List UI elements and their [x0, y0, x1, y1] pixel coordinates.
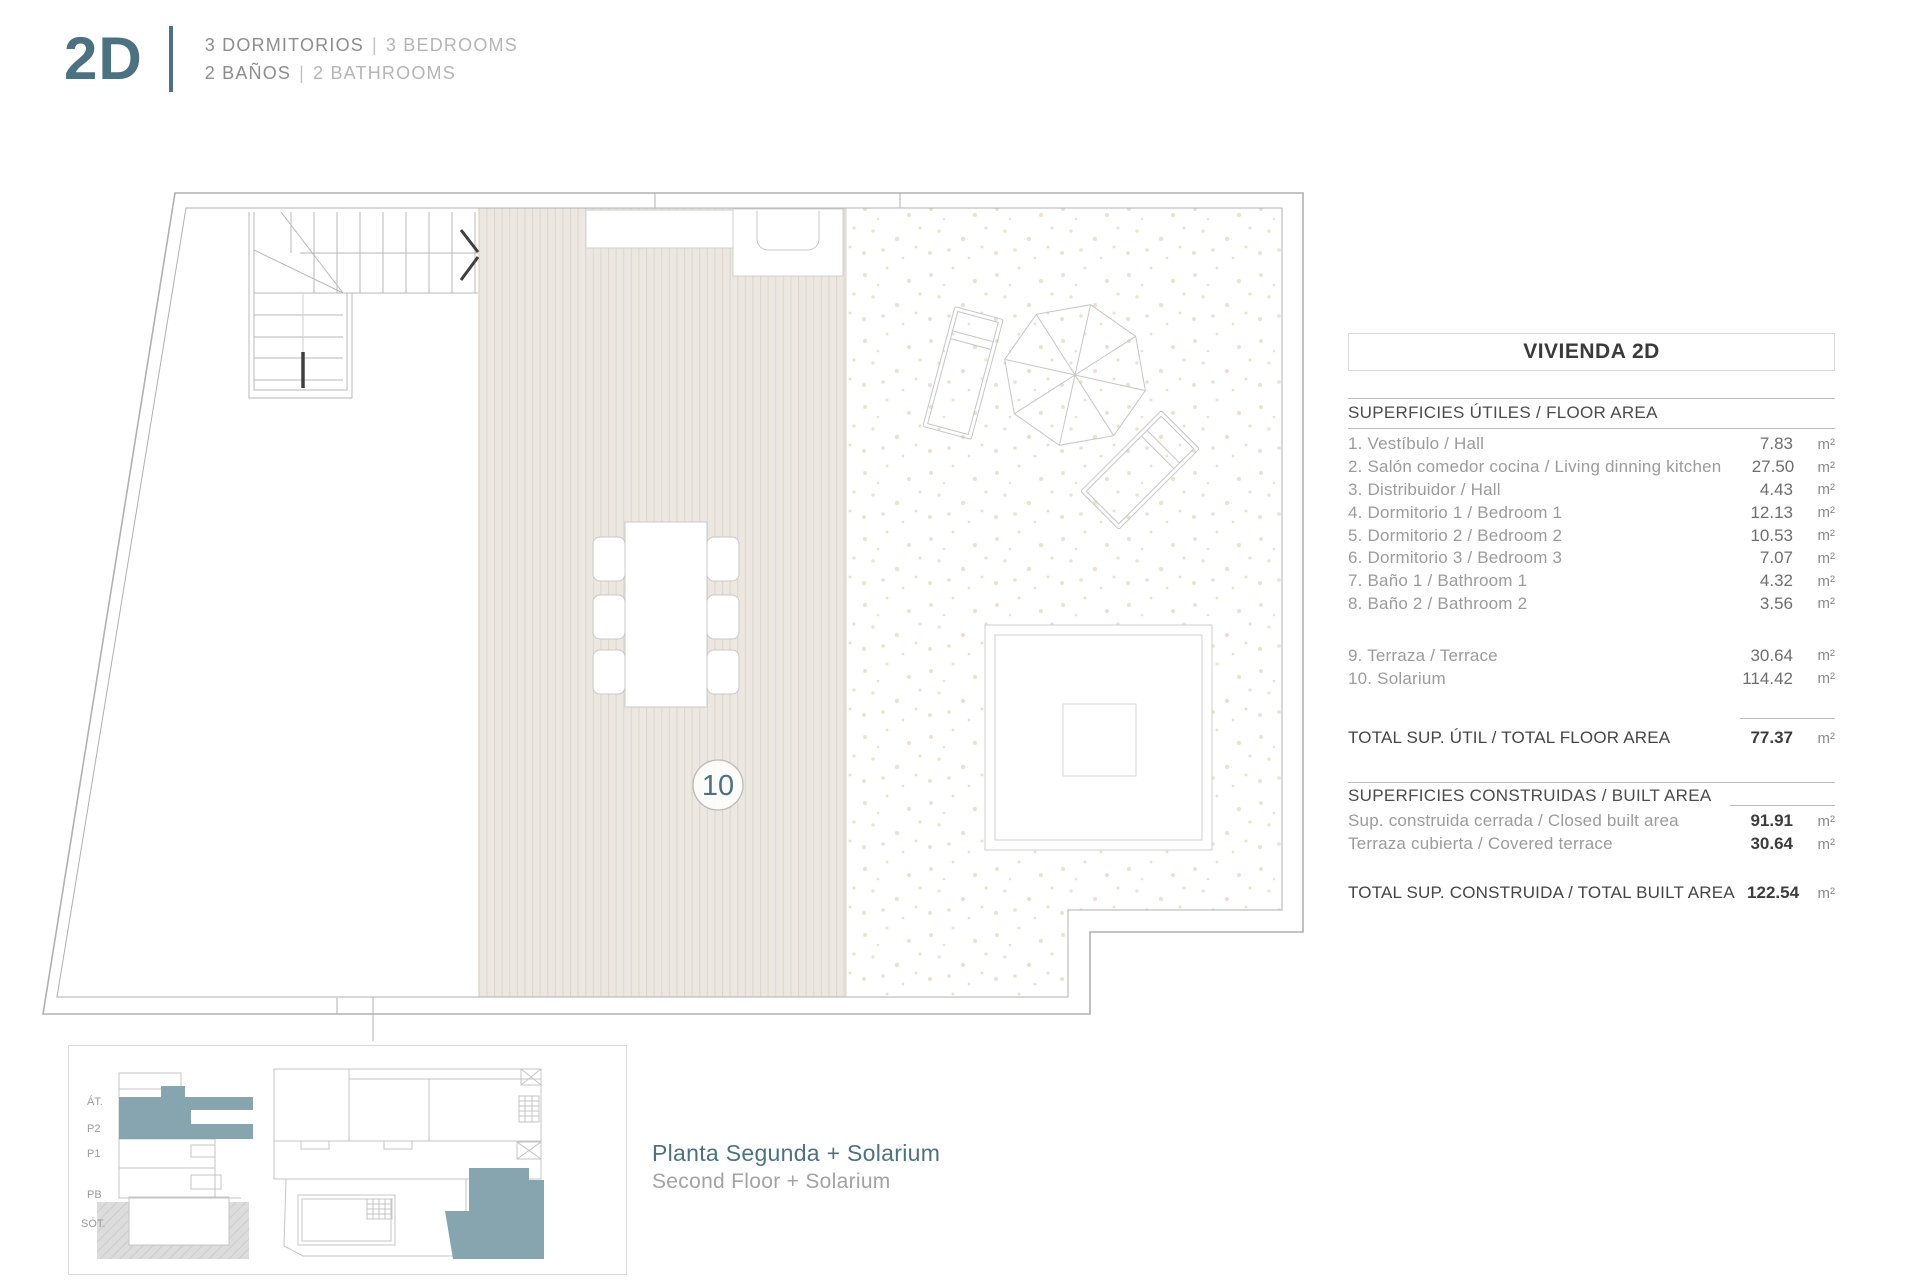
sink-basin: [757, 211, 819, 250]
area-row: 6. Dormitorio 3 / Bedroom 37.07m²: [1348, 547, 1835, 570]
rule: [1730, 805, 1835, 806]
floor-area-header: SUPERFICIES ÚTILES / FLOOR AREA: [1348, 403, 1835, 423]
area-row: 2. Salón comedor cocina / Living dinning…: [1348, 456, 1835, 479]
chair: [593, 537, 625, 581]
floor-label-pb: PB: [87, 1189, 102, 1201]
area-row: 10. Solarium114.42m²: [1348, 667, 1835, 690]
total-floor-row: TOTAL SUP. ÚTIL / TOTAL FLOOR AREA77.37m…: [1348, 727, 1835, 750]
key-plan-drawing: ÁT. P2 P1 PB SÓT.: [69, 1046, 626, 1274]
built-row: Sup. construida cerrada / Closed built a…: [1348, 810, 1835, 833]
caption-spanish: Planta Segunda + Solarium: [652, 1140, 940, 1167]
unit-title: VIVIENDA 2D: [1523, 340, 1660, 364]
unit-title-box: VIVIENDA 2D: [1348, 333, 1835, 371]
brochure-page: 2D 3 DORMITORIOS|3 BEDROOMS 2 BAÑOS|2 BA…: [0, 0, 1920, 1280]
rule: [1348, 782, 1835, 783]
floor-label-atico: ÁT.: [87, 1095, 103, 1108]
highlighted-floors: [119, 1086, 253, 1139]
area-row: 9. Terraza / Terrace30.64m²: [1348, 644, 1835, 667]
dining-table: [625, 522, 707, 707]
building-section: ÁT. P2 P1 PB SÓT.: [81, 1073, 253, 1259]
plan-caption: Planta Segunda + Solarium Second Floor +…: [652, 1140, 940, 1194]
rule: [1348, 398, 1835, 399]
room-number-badge: 10: [693, 760, 743, 810]
area-row: 4. Dormitorio 1 / Bedroom 112.13m²: [1348, 501, 1835, 524]
area-row: 5. Dormitorio 2 / Bedroom 210.53m²: [1348, 524, 1835, 547]
sum-rule: [1740, 718, 1835, 719]
total-built-row: TOTAL SUP. CONSTRUIDA / TOTAL BUILT AREA…: [1348, 882, 1835, 905]
site-key-plan: [274, 1069, 544, 1259]
floor-label-p1: P1: [87, 1148, 100, 1160]
floor-area-rows: 1. Vestíbulo / Hall7.83m² 2. Salón comed…: [1348, 433, 1835, 690]
floor-label-p2: P2: [87, 1123, 100, 1135]
solarium-gravel-area: [846, 208, 1282, 997]
areas-panel: VIVIENDA 2D SUPERFICIES ÚTILES / FLOOR A…: [1348, 333, 1835, 913]
area-row: 3. Distribuidor / Hall4.43m²: [1348, 479, 1835, 502]
chair: [707, 537, 739, 581]
caption-english: Second Floor + Solarium: [652, 1170, 940, 1194]
built-row: Terraza cubierta / Covered terrace30.64m…: [1348, 833, 1835, 856]
staircase: [249, 212, 478, 398]
key-plan-box: ÁT. P2 P1 PB SÓT.: [68, 1045, 627, 1275]
area-row: 1. Vestíbulo / Hall7.83m²: [1348, 433, 1835, 456]
floor-label-sotano: SÓT.: [81, 1217, 105, 1230]
dining-set: [593, 522, 739, 707]
skylight: [985, 625, 1212, 850]
chair: [593, 650, 625, 694]
chair: [707, 650, 739, 694]
room-number-label: 10: [702, 770, 734, 802]
chair: [707, 595, 739, 639]
area-row: 7. Baño 1 / Bathroom 14.32m²: [1348, 570, 1835, 593]
rule: [1348, 428, 1835, 429]
built-area-header: SUPERFICIES CONSTRUIDAS / BUILT AREA: [1348, 786, 1835, 806]
chair: [593, 595, 625, 639]
area-row: 8. Baño 2 / Bathroom 23.56m²: [1348, 593, 1835, 616]
highlighted-unit: [445, 1168, 544, 1259]
